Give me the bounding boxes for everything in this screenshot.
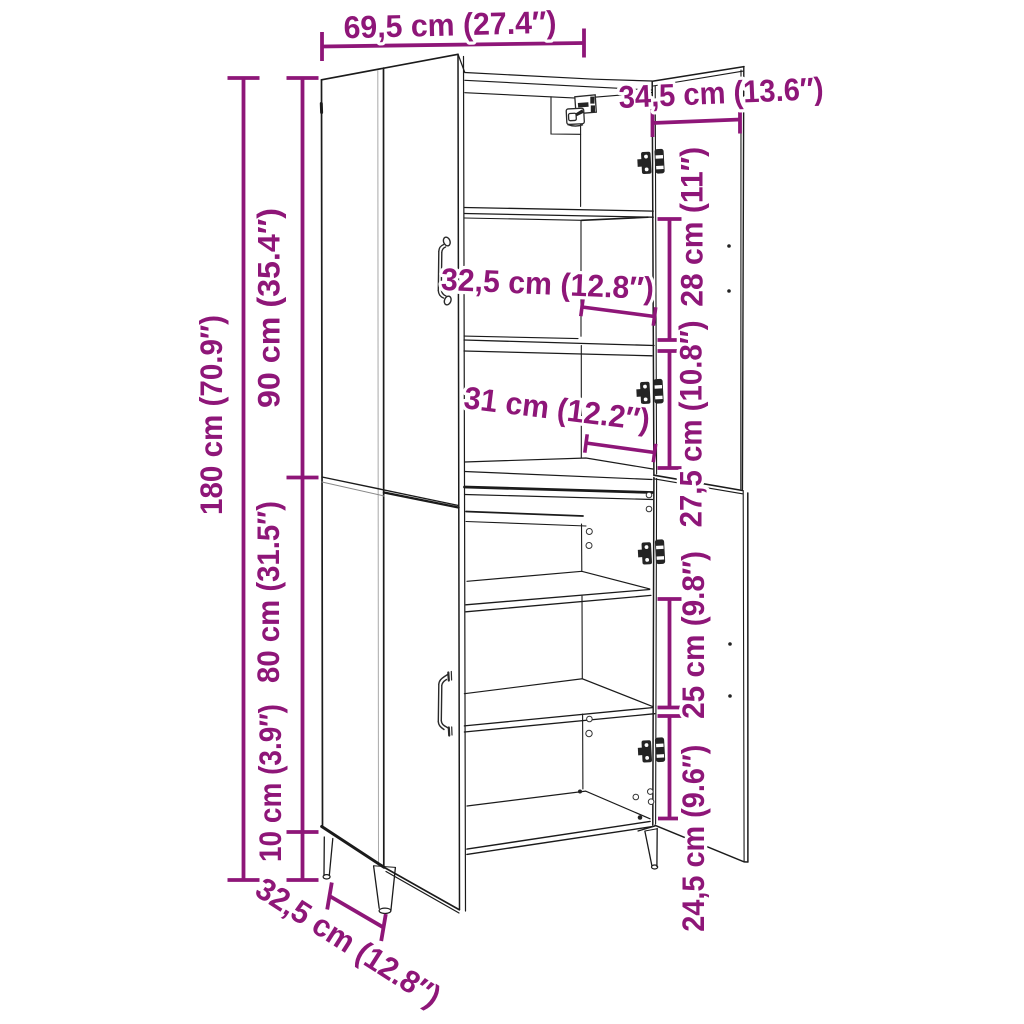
svg-text:80 cm (31.5″): 80 cm (31.5″) — [250, 501, 286, 683]
svg-text:90 cm (35.4″): 90 cm (35.4″) — [251, 208, 287, 408]
svg-text:27,5 cm (10.8″): 27,5 cm (10.8″) — [673, 320, 709, 527]
svg-text:28 cm (11″): 28 cm (11″) — [674, 147, 710, 307]
svg-text:25 cm (9.8″): 25 cm (9.8″) — [675, 551, 711, 719]
svg-text:24,5 cm (9.6″): 24,5 cm (9.6″) — [675, 745, 711, 932]
svg-text:69,5 cm (27.4″): 69,5 cm (27.4″) — [343, 4, 557, 46]
svg-text:10 cm (3.9″): 10 cm (3.9″) — [252, 704, 288, 862]
svg-text:180 cm (70.9″): 180 cm (70.9″) — [193, 315, 229, 515]
